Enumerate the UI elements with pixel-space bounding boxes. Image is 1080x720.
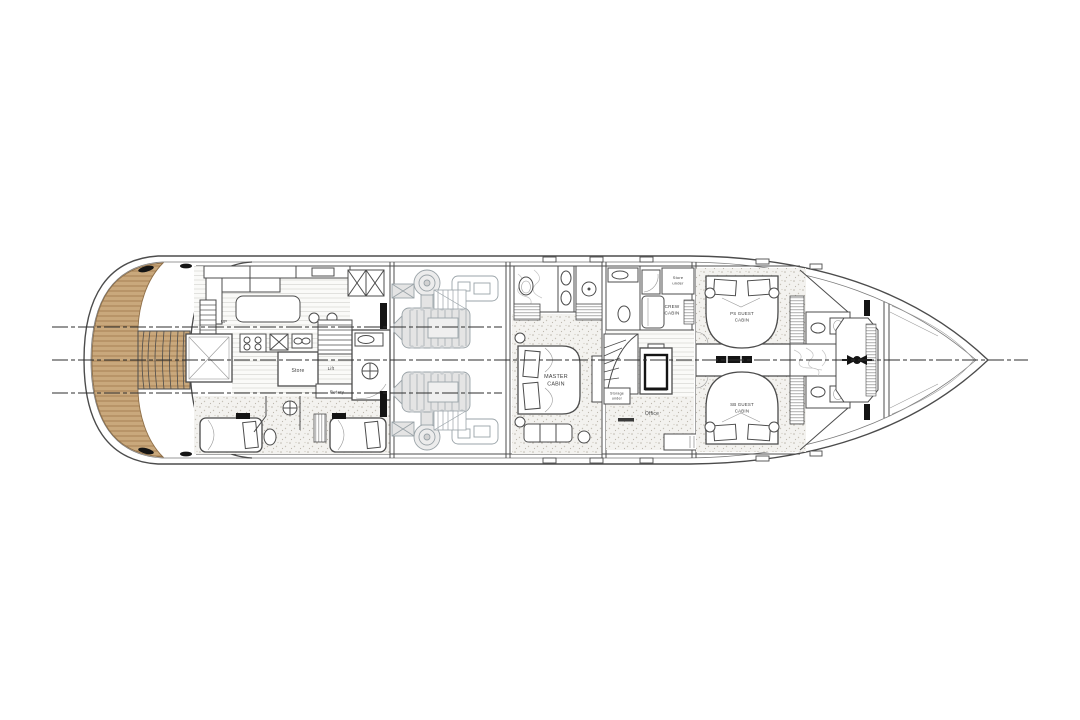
luggage-rack — [514, 304, 540, 320]
side-door-aft-top — [380, 303, 387, 329]
day-head — [352, 330, 390, 400]
pillow — [523, 350, 540, 377]
store-under-label-1: Store — [673, 275, 684, 280]
corridor-track — [716, 356, 752, 363]
master-dresser — [592, 356, 602, 402]
office-arrow — [618, 418, 634, 422]
washer-dryer — [348, 270, 384, 296]
bulwark-gate-bottom — [864, 404, 870, 420]
crew-table — [236, 296, 300, 322]
tender-hatch — [186, 334, 232, 382]
office-label: Office — [645, 411, 659, 417]
pillow — [523, 382, 540, 409]
luggage-rack — [576, 304, 602, 320]
crew-cabin-starboard — [330, 413, 386, 452]
yacht-deck-plan: UP Store Lift Rotary — [0, 0, 1080, 720]
bulwark-gate-top — [864, 300, 870, 316]
nightstand — [515, 417, 525, 427]
lobby-lift — [640, 344, 672, 394]
counter-appliance — [312, 268, 334, 276]
lobby-stairs — [604, 334, 638, 394]
master-sofa — [524, 424, 572, 442]
master-cabin-label-2: CABIN — [547, 382, 564, 388]
rotary-label: Rotary — [330, 390, 345, 395]
luggage-rack — [790, 296, 804, 344]
side-table — [578, 431, 590, 443]
ps-guest-label-2: CABIN — [735, 318, 749, 323]
storage-under-label-2: under — [612, 397, 623, 401]
deck-plan-drawing: UP Store Lift Rotary — [0, 0, 1080, 720]
ps-guest-label-1: PS GUEST — [730, 311, 754, 316]
storage-under-label-1: Storage — [610, 392, 624, 396]
luggage-rack — [790, 376, 804, 424]
crew-ladder-hatch — [314, 414, 326, 442]
crew-cabin-label-1: CREW — [665, 304, 680, 309]
crew-cabin-label-2: CABIN — [664, 311, 679, 316]
side-door-aft-bottom — [380, 391, 387, 417]
crew-cabin-port — [200, 413, 262, 452]
sb-guest-label-1: SB GUEST — [730, 402, 754, 407]
nightstand — [515, 333, 525, 343]
store-label: Store — [292, 368, 305, 374]
lift-label: Lift — [328, 366, 335, 371]
sb-guest-label-2: CABIN — [735, 409, 749, 414]
up-label: UP — [221, 319, 227, 324]
store-under-label-2: under — [672, 281, 684, 286]
master-cabin-label-1: MASTER — [544, 374, 568, 380]
